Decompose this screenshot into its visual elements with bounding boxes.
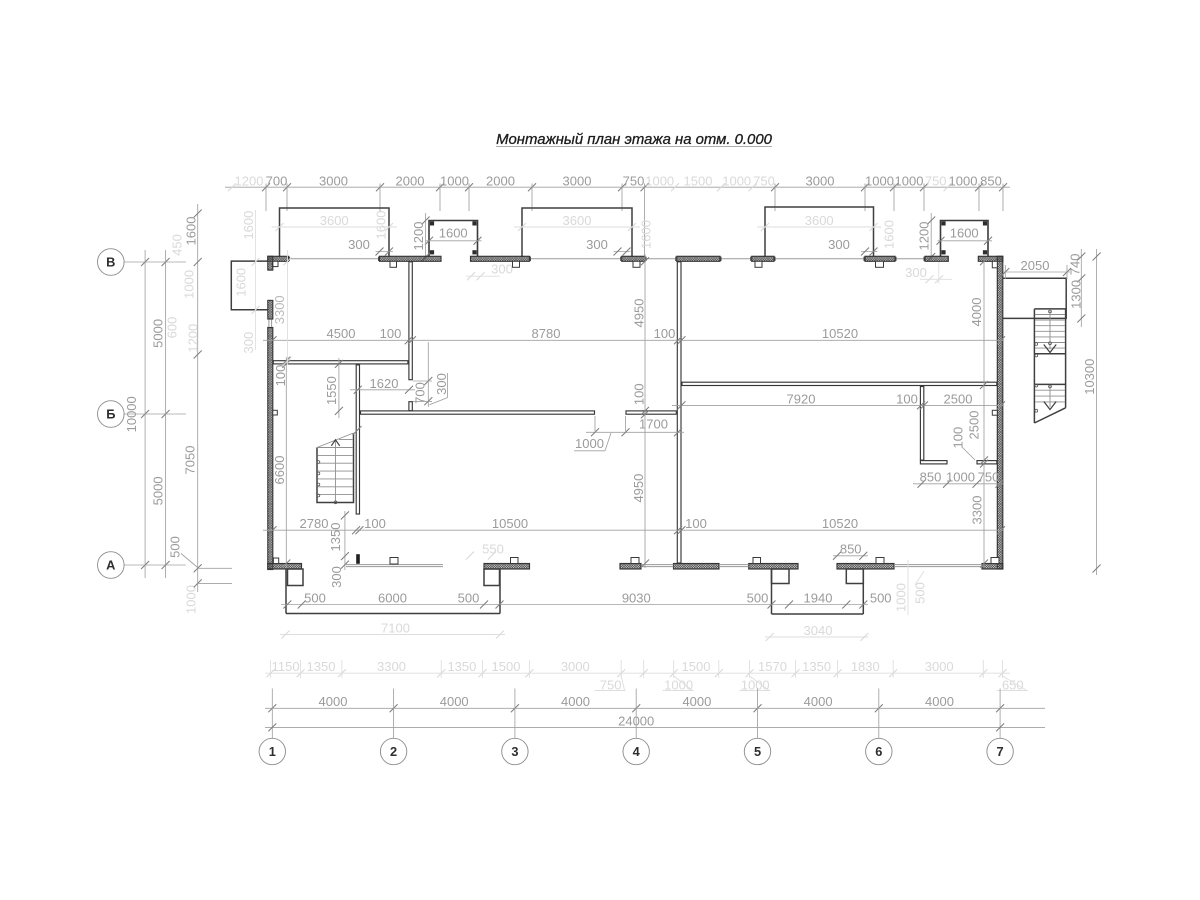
svg-text:24000: 24000: [618, 713, 654, 728]
svg-text:300: 300: [905, 265, 927, 280]
svg-text:1200: 1200: [411, 222, 426, 251]
svg-text:4000: 4000: [804, 694, 833, 709]
svg-text:1940: 1940: [804, 590, 833, 605]
svg-text:1500: 1500: [684, 173, 713, 188]
svg-text:3300: 3300: [272, 295, 287, 324]
svg-text:3600: 3600: [805, 213, 834, 228]
svg-text:1000: 1000: [440, 173, 469, 188]
svg-text:10520: 10520: [822, 516, 858, 531]
svg-text:Монтажный план этажа на отм. 0: Монтажный план этажа на отм. 0.000: [496, 132, 773, 148]
svg-text:1550: 1550: [324, 376, 339, 405]
svg-text:5000: 5000: [151, 319, 166, 348]
svg-text:1600: 1600: [374, 211, 389, 240]
svg-text:4: 4: [633, 744, 641, 759]
svg-text:4000: 4000: [925, 694, 954, 709]
svg-text:1600: 1600: [639, 220, 654, 249]
svg-text:1600: 1600: [241, 211, 256, 240]
svg-text:6: 6: [875, 744, 882, 759]
svg-text:1350: 1350: [447, 659, 476, 674]
svg-text:300: 300: [348, 237, 370, 252]
svg-text:2000: 2000: [396, 173, 425, 188]
svg-text:300: 300: [241, 332, 256, 354]
svg-text:100: 100: [951, 427, 966, 449]
svg-text:300: 300: [491, 262, 513, 277]
svg-text:1500: 1500: [492, 659, 521, 674]
svg-text:4500: 4500: [327, 326, 356, 341]
svg-text:1600: 1600: [183, 217, 198, 246]
svg-text:500: 500: [870, 590, 892, 605]
svg-text:700: 700: [266, 173, 288, 188]
svg-text:2500: 2500: [967, 411, 982, 440]
svg-text:Б: Б: [106, 407, 115, 422]
svg-text:1150: 1150: [272, 659, 300, 674]
svg-text:4000: 4000: [682, 694, 711, 709]
svg-text:7050: 7050: [183, 446, 198, 475]
svg-text:500: 500: [747, 590, 769, 605]
svg-text:А: А: [106, 558, 115, 573]
svg-text:1700: 1700: [639, 417, 668, 432]
svg-text:500: 500: [913, 582, 928, 604]
svg-text:450: 450: [170, 234, 185, 256]
svg-text:500: 500: [458, 590, 480, 605]
svg-text:3300: 3300: [377, 659, 406, 674]
svg-text:750: 750: [978, 470, 1000, 485]
svg-text:3000: 3000: [925, 659, 954, 674]
svg-text:1000: 1000: [575, 436, 604, 451]
svg-text:1: 1: [269, 744, 276, 759]
svg-text:3300: 3300: [970, 496, 985, 525]
svg-text:1500: 1500: [682, 659, 711, 674]
svg-text:2000: 2000: [486, 173, 515, 188]
svg-text:500: 500: [304, 590, 326, 605]
svg-text:300: 300: [586, 237, 608, 252]
svg-text:1350: 1350: [328, 523, 343, 552]
svg-text:4950: 4950: [631, 474, 646, 503]
svg-text:10500: 10500: [492, 516, 528, 531]
svg-text:850: 850: [920, 470, 942, 485]
svg-text:3000: 3000: [806, 173, 835, 188]
svg-text:100: 100: [364, 516, 386, 531]
svg-text:3000: 3000: [563, 173, 592, 188]
svg-text:5000: 5000: [151, 476, 166, 505]
svg-text:7920: 7920: [787, 391, 816, 406]
svg-text:3600: 3600: [563, 213, 592, 228]
svg-text:3000: 3000: [561, 659, 590, 674]
svg-text:100: 100: [685, 516, 707, 531]
svg-text:1350: 1350: [802, 659, 831, 674]
svg-text:1000: 1000: [722, 173, 751, 188]
svg-text:2500: 2500: [944, 391, 973, 406]
svg-text:В: В: [106, 255, 115, 270]
svg-text:1200: 1200: [235, 173, 264, 188]
svg-text:4950: 4950: [632, 299, 647, 328]
svg-text:1000: 1000: [645, 173, 674, 188]
svg-text:4000: 4000: [969, 298, 984, 327]
svg-text:7: 7: [997, 744, 1004, 759]
svg-text:1000: 1000: [181, 270, 196, 299]
svg-text:3: 3: [511, 744, 518, 759]
svg-text:300: 300: [828, 237, 850, 252]
svg-text:6000: 6000: [378, 590, 407, 605]
svg-text:4000: 4000: [561, 694, 590, 709]
svg-text:100: 100: [654, 326, 676, 341]
svg-text:1200: 1200: [185, 324, 200, 353]
svg-text:1000: 1000: [949, 173, 978, 188]
svg-text:300: 300: [434, 373, 449, 395]
svg-text:1000: 1000: [184, 585, 199, 614]
svg-text:1000: 1000: [894, 583, 909, 612]
svg-text:750: 750: [623, 173, 645, 188]
svg-text:100: 100: [632, 383, 647, 405]
svg-text:8780: 8780: [532, 326, 561, 341]
svg-text:700: 700: [413, 382, 428, 404]
svg-text:100: 100: [896, 391, 918, 406]
svg-text:9030: 9030: [622, 590, 651, 605]
svg-text:2050: 2050: [1021, 258, 1050, 273]
svg-text:10300: 10300: [1082, 359, 1097, 395]
svg-text:3040: 3040: [804, 623, 833, 638]
svg-text:750: 750: [753, 173, 775, 188]
svg-text:100: 100: [380, 326, 402, 341]
svg-text:750: 750: [925, 173, 947, 188]
svg-text:850: 850: [840, 542, 862, 557]
svg-text:3000: 3000: [319, 173, 348, 188]
svg-text:1000: 1000: [865, 173, 894, 188]
svg-text:10520: 10520: [822, 326, 858, 341]
svg-text:7100: 7100: [381, 621, 410, 636]
svg-text:5: 5: [754, 744, 761, 759]
svg-text:1000: 1000: [946, 470, 975, 485]
svg-text:4000: 4000: [440, 694, 469, 709]
svg-text:1000: 1000: [895, 173, 924, 188]
svg-text:1600: 1600: [950, 226, 979, 241]
svg-text:1350: 1350: [307, 659, 336, 674]
svg-text:1620: 1620: [370, 376, 399, 391]
svg-text:1570: 1570: [758, 659, 787, 674]
svg-text:1600: 1600: [439, 226, 468, 241]
svg-text:500: 500: [168, 536, 183, 558]
svg-text:100: 100: [273, 365, 288, 387]
svg-text:4000: 4000: [319, 694, 348, 709]
svg-text:1600: 1600: [233, 268, 248, 297]
svg-text:600: 600: [164, 317, 179, 339]
svg-text:300: 300: [329, 566, 344, 588]
svg-text:2780: 2780: [300, 516, 329, 531]
svg-text:1600: 1600: [882, 220, 897, 249]
svg-text:3600: 3600: [320, 213, 349, 228]
svg-text:2: 2: [390, 744, 397, 759]
svg-text:6600: 6600: [272, 456, 287, 485]
svg-text:1300: 1300: [1069, 280, 1084, 309]
svg-text:850: 850: [980, 173, 1002, 188]
svg-text:1200: 1200: [916, 222, 931, 251]
svg-text:1830: 1830: [851, 659, 880, 674]
